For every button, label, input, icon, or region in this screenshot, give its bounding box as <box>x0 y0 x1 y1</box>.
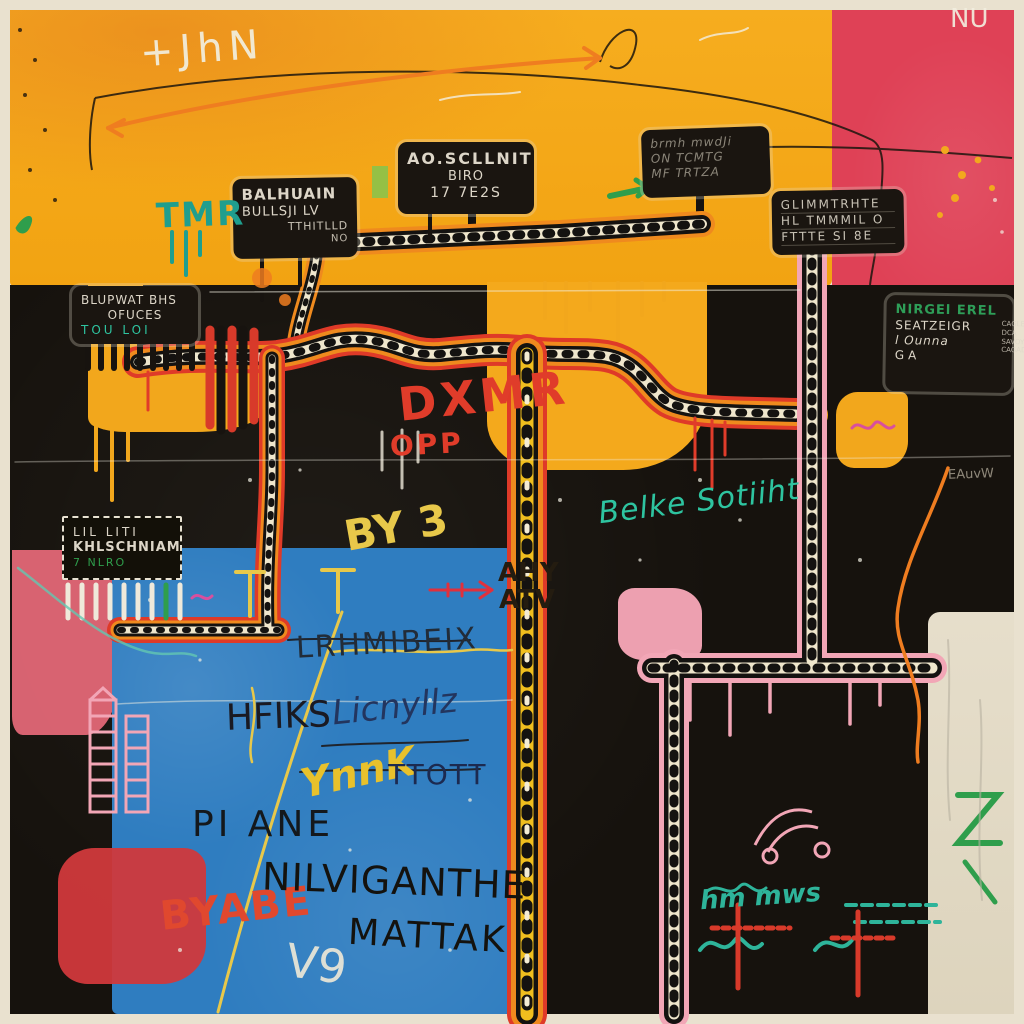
sign-side-line: CAGAD <box>1001 346 1024 355</box>
sign-khlschniam: LIL LITI KHLSCHNIAM 7 NLRO <box>62 516 182 580</box>
sign-line: FTTTE SI 8E <box>781 228 895 246</box>
road-label-line: AHY <box>498 558 559 588</box>
graffiti-hfiks: HFIKS <box>225 696 331 737</box>
sign-blupwat: BLUPWAT BHS OFUCES TOU LOI <box>72 286 198 344</box>
graffiti-mattak: MATTAK <box>347 914 508 960</box>
painting-canvas: BALHUAIN BULLSJI LV TTHITLLD NO AO.SCLLN… <box>0 0 1024 1024</box>
graffiti-v9: V9 <box>283 936 350 992</box>
sign-line: BLUPWAT BHS <box>81 293 189 308</box>
sign-scrawl: brmh mwdJi ON TCMTG MF TRTZA <box>641 126 771 198</box>
sign-glimmtete: GLIMMTRHTE HL TMMMIL O FTTTE SI 8E <box>771 189 904 255</box>
sign-aoscllnit: AO.SCLLNIT BIRO 17 7E2S <box>398 142 534 214</box>
sign-line: 7 NLRO <box>73 556 171 570</box>
sign-line: BIRO <box>407 169 525 185</box>
sign-line: AO.SCLLNIT <box>407 149 525 169</box>
road-label-line: ATV <box>499 585 555 615</box>
sign-line: GA <box>895 348 997 365</box>
graffiti-ttott: TTOTT <box>388 760 487 789</box>
sign-line: OFUCES <box>81 308 189 323</box>
sign-line: BALHUAIN <box>241 184 347 205</box>
graffiti-nilviganthe: NILVIGANTHE <box>261 857 527 906</box>
road-label-ahy-atv: AHYATV <box>498 560 556 615</box>
graffiti-tmr-tag: TMR <box>155 196 245 235</box>
red-crosses <box>712 905 895 995</box>
sign-line: MF TRTZA <box>651 163 761 182</box>
graffiti-nu: NU <box>950 6 988 33</box>
graffiti-jhn: +JhN <box>139 24 266 75</box>
sign-line: NO <box>242 233 348 247</box>
sign-side-column: CAGLEF DCA SAVOYS CAGAD <box>1001 304 1024 386</box>
sign-line: KHLSCHNIAM <box>73 540 171 556</box>
sign-line: HL TMMMIL O <box>781 212 895 230</box>
sign-line: l Ounna <box>895 333 997 350</box>
sign-nirgel: NIRGEl EREL SEATZEIGR l Ounna GA CAGLEF … <box>885 295 1013 393</box>
graffiti-piane: PI ANE <box>192 806 334 844</box>
sign-main-column: NIRGEl EREL SEATZEIGR l Ounna GA <box>894 302 997 386</box>
bar-fence-bottom <box>68 585 180 618</box>
sign-line: SEATZEIGR <box>895 318 997 335</box>
sign-line: NIRGEl EREL <box>895 302 997 320</box>
graffiti-eauw: EAuvW <box>948 467 994 482</box>
sign-line: 17 7E2S <box>407 185 525 203</box>
sign-line: BULLSJI LV <box>242 203 348 221</box>
sign-balhuain: BALHUAIN BULLSJI LV TTHITLLD NO <box>232 177 357 259</box>
graffiti-opp: OPP <box>389 428 464 461</box>
sign-line: TOU LOI <box>81 323 189 338</box>
sign-line: LIL LITI <box>73 525 171 540</box>
